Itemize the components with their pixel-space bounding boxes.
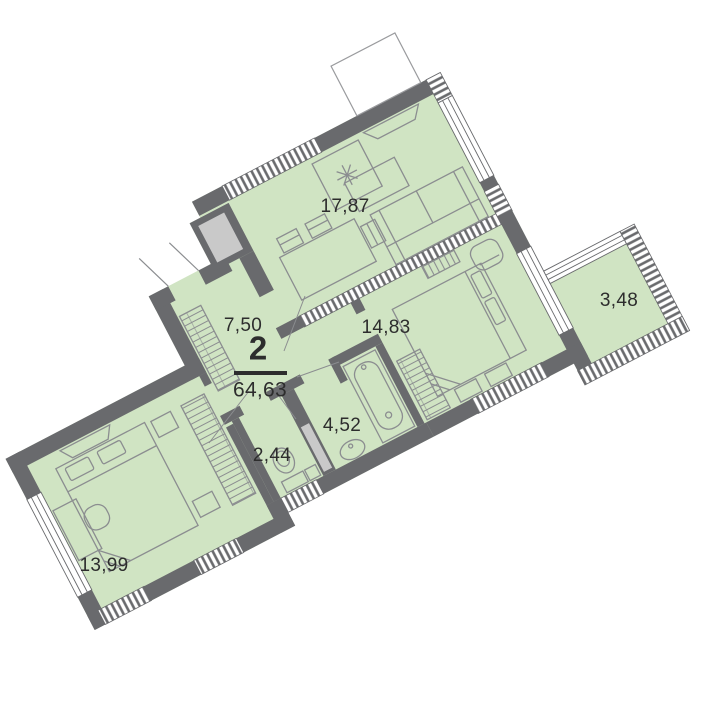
room-label-bedroom-right: 14,83 (361, 317, 410, 338)
apartment-total-area: 64,63 (233, 379, 287, 402)
floorplan-canvas: 17,87 7,50 14,83 3,48 4,52 2,44 13,99 2 … (0, 0, 720, 720)
floor-plan-svg: 17,87 7,50 14,83 3,48 4,52 2,44 13,99 2 … (0, 0, 720, 720)
room-label-living: 17,87 (320, 196, 369, 217)
room-label-bedroom-left: 13,99 (79, 555, 128, 576)
room-label-bathroom: 4,52 (323, 415, 361, 436)
apartment-rooms-count: 2 (249, 330, 267, 367)
floor-area (0, 25, 690, 638)
room-label-wc: 2,44 (253, 445, 291, 466)
rotated-plan (0, 0, 690, 638)
room-label-loggia: 3,48 (600, 290, 638, 311)
